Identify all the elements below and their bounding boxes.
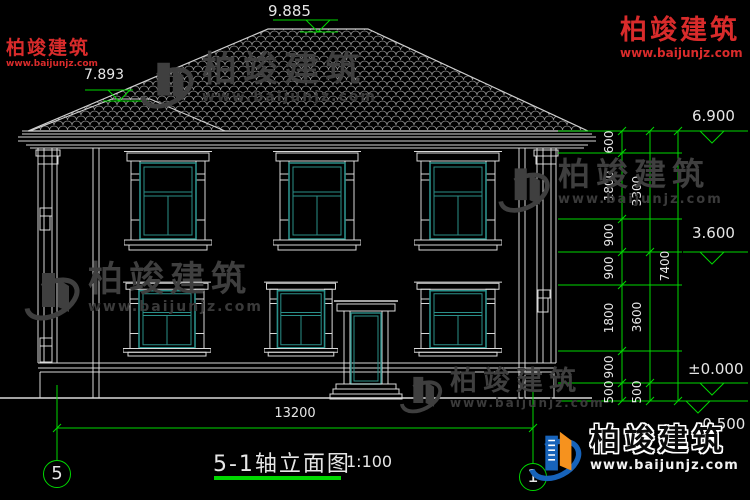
drawing-title: 5-1轴立面图 [213,446,351,478]
walls [0,148,592,398]
watermark-red-top-right: 柏竣建筑 www.baijunjz.com [620,16,743,60]
watermark-red-top-left: 柏竣建筑 www.baijunjz.com [6,38,98,69]
watermark-url: www.baijunjz.com [620,46,743,60]
company-logo-url: www.baijunjz.com [590,458,739,473]
watermark-brand: 柏竣建筑 [6,38,98,59]
dim-1800: 1800 [602,171,616,202]
dim-900: 900 [602,224,616,247]
elevation-second-floor: 3.600 [692,224,735,242]
elevation-ridge: 9.885 [268,2,311,20]
drawing-scale: 1:100 [346,452,392,471]
dim-500: 500 [630,381,644,404]
dim-900: 900 [602,257,616,280]
dim-7400: 7400 [658,251,672,282]
company-logo-brand: 柏竣建筑 [590,424,739,457]
company-logo-icon [526,424,584,486]
title-underline [214,476,341,480]
elevation-ground-floor: ±0.000 [688,360,744,378]
entry-door [330,301,402,399]
dim-600: 600 [602,131,616,154]
dim-3300: 3300 [630,176,644,207]
elevation-eave: 6.900 [692,107,735,125]
company-logo: 柏竣建筑 www.baijunjz.com [526,424,739,486]
eave-cornice [18,131,596,148]
watermark-url: www.baijunjz.com [6,59,98,69]
axis-number-5: 5 [47,463,67,484]
dim-3600: 3600 [630,302,644,333]
windows [123,152,502,357]
elevation-drawing-canvas: 9.885 7.893 6.900 3.600 ±0.000 -0.500 60… [0,0,750,500]
watermark-brand: 柏竣建筑 [620,16,743,46]
dim-500: 500 [602,381,616,404]
dim-1800: 1800 [602,303,616,334]
dim-900: 900 [602,356,616,379]
elevation-lower-ridge: 7.893 [84,67,124,83]
dim-13200: 13200 [265,406,325,421]
